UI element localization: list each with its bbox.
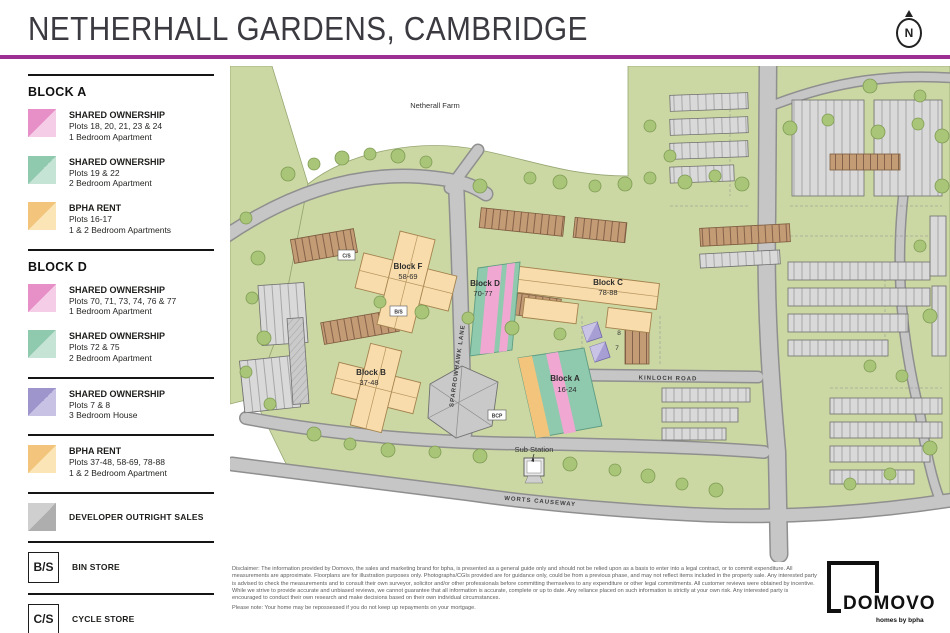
legend-item: SHARED OWNERSHIP Plots 7 & 8 3 Bedroom H…: [28, 388, 214, 422]
page-title: NETHERHALL GARDENS, CAMBRIDGE: [28, 10, 588, 48]
legend-item-plots: Plots 16-17: [69, 214, 171, 225]
legend-item-type: 2 Bedroom Apartment: [69, 353, 165, 364]
legend-item: SHARED OWNERSHIP Plots 70, 71, 73, 74, 7…: [28, 284, 214, 318]
logo-tagline: homes by bpha: [876, 617, 924, 624]
legend-item-label: CYCLE STORE: [72, 614, 135, 624]
divider: [28, 377, 214, 379]
plot-number-8: 8: [617, 330, 621, 337]
legend-item-type: 3 Bedroom House: [69, 410, 165, 421]
legend-item-title: SHARED OWNERSHIP: [69, 285, 176, 296]
legend-item-plots: Plots 72 & 75: [69, 342, 165, 353]
legend-heading-block-a: BLOCK A: [28, 85, 214, 99]
block-d-label: Block D: [470, 279, 500, 288]
swatch-orange-icon: [28, 445, 56, 473]
cycle-store-badge: C/S: [28, 604, 59, 633]
disclaimer: Disclaimer: The information provided by …: [232, 566, 818, 613]
block-d-plots: 70-77: [473, 289, 492, 298]
legend-item-label: DEVELOPER OUTRIGHT SALES: [69, 512, 204, 522]
block-a-label: Block A: [550, 374, 580, 383]
legend-item-title: SHARED OWNERSHIP: [69, 331, 165, 342]
swatch-pink-icon: [28, 284, 56, 312]
legend-item: SHARED OWNERSHIP Plots 72 & 75 2 Bedroom…: [28, 330, 214, 364]
farm-label: Netherall Farm: [410, 101, 460, 110]
legend-item-type: 1 Bedroom Apartment: [69, 306, 176, 317]
disclaimer-text: Disclaimer: The information provided by …: [232, 566, 818, 602]
legend-item-type: 1 Bedroom Apartment: [69, 132, 165, 143]
block-b-plots: 37-48: [359, 378, 378, 387]
block-f-label: Block F: [394, 262, 423, 271]
legend-item: B/S BIN STORE: [28, 552, 214, 583]
swatch-pink-icon: [28, 109, 56, 137]
block-a-plots: 16-24: [557, 385, 576, 394]
swatch-green-icon: [28, 330, 56, 358]
legend-item-title: BPHA RENT: [69, 446, 167, 457]
marker-bs: B/S: [394, 310, 403, 316]
marker-cs: C/S: [342, 254, 351, 260]
swatch-purple-icon: [28, 388, 56, 416]
compass-icon: N: [893, 10, 925, 52]
legend-item-plots: Plots 19 & 22: [69, 168, 165, 179]
legend-heading-block-d: BLOCK D: [28, 260, 214, 274]
page: NETHERHALL GARDENS, CAMBRIDGE N BLOCK A …: [0, 0, 950, 633]
divider: [28, 249, 214, 251]
legend-item-plots: Plots 70, 71, 73, 74, 76 & 77: [69, 296, 176, 307]
disclaimer-note: Please note: Your home may be repossesse…: [232, 605, 818, 612]
compass-letter: N: [896, 18, 922, 48]
legend-item-plots: Plots 7 & 8: [69, 400, 165, 411]
compass-north-arrow-icon: [905, 10, 913, 17]
legend-item: SHARED OWNERSHIP Plots 19 & 22 2 Bedroom…: [28, 156, 214, 190]
legend-item: BPHA RENT Plots 16-17 1 & 2 Bedroom Apar…: [28, 202, 214, 236]
block-b-label: Block B: [356, 368, 386, 377]
marker-bcp: BCP: [492, 414, 503, 420]
legend-item-type: 1 & 2 Bedroom Apartment: [69, 468, 167, 479]
legend-item-title: BPHA RENT: [69, 203, 171, 214]
swatch-orange-icon: [28, 202, 56, 230]
bin-store-badge: B/S: [28, 552, 59, 583]
legend-item-plots: Plots 18, 20, 21, 23 & 24: [69, 121, 165, 132]
legend-sidebar: BLOCK A SHARED OWNERSHIP Plots 18, 20, 2…: [28, 68, 214, 633]
legend-item-plots: Plots 37-48, 58-69, 78-88: [69, 457, 167, 468]
block-d-building: [470, 262, 520, 356]
legend-item: DEVELOPER OUTRIGHT SALES: [28, 503, 214, 531]
divider: [28, 74, 214, 76]
block-c-plots: 78-88: [598, 288, 617, 297]
legend-item: C/S CYCLE STORE: [28, 604, 214, 633]
legend-item: SHARED OWNERSHIP Plots 18, 20, 21, 23 & …: [28, 109, 214, 143]
plot-number-7: 7: [615, 345, 619, 352]
block-c-label: Block C: [593, 278, 623, 287]
swatch-gray-icon: [28, 503, 56, 531]
legend-item-type: 2 Bedroom Apartment: [69, 178, 165, 189]
divider: [28, 541, 214, 543]
legend-item-title: SHARED OWNERSHIP: [69, 157, 165, 168]
site-plan-map: 8 7 C/S B/: [230, 66, 950, 562]
block-f-plots: 58-69: [398, 272, 417, 281]
legend-item-label: BIN STORE: [72, 562, 120, 572]
sub-station-label: Sub Station: [515, 445, 554, 454]
divider: [28, 593, 214, 595]
divider: [28, 434, 214, 436]
domovo-logo: DOMOVO homes by bpha: [827, 561, 937, 625]
legend-item-title: SHARED OWNERSHIP: [69, 389, 165, 400]
legend-item: BPHA RENT Plots 37-48, 58-69, 78-88 1 & …: [28, 445, 214, 479]
legend-item-type: 1 & 2 Bedroom Apartments: [69, 225, 171, 236]
legend-item-title: SHARED OWNERSHIP: [69, 110, 165, 121]
road-label-kinloch: KINLOCH ROAD: [639, 375, 698, 382]
logo-brand: DOMOVO: [841, 593, 938, 615]
swatch-green-icon: [28, 156, 56, 184]
divider: [28, 492, 214, 494]
accent-rule: [0, 55, 950, 59]
